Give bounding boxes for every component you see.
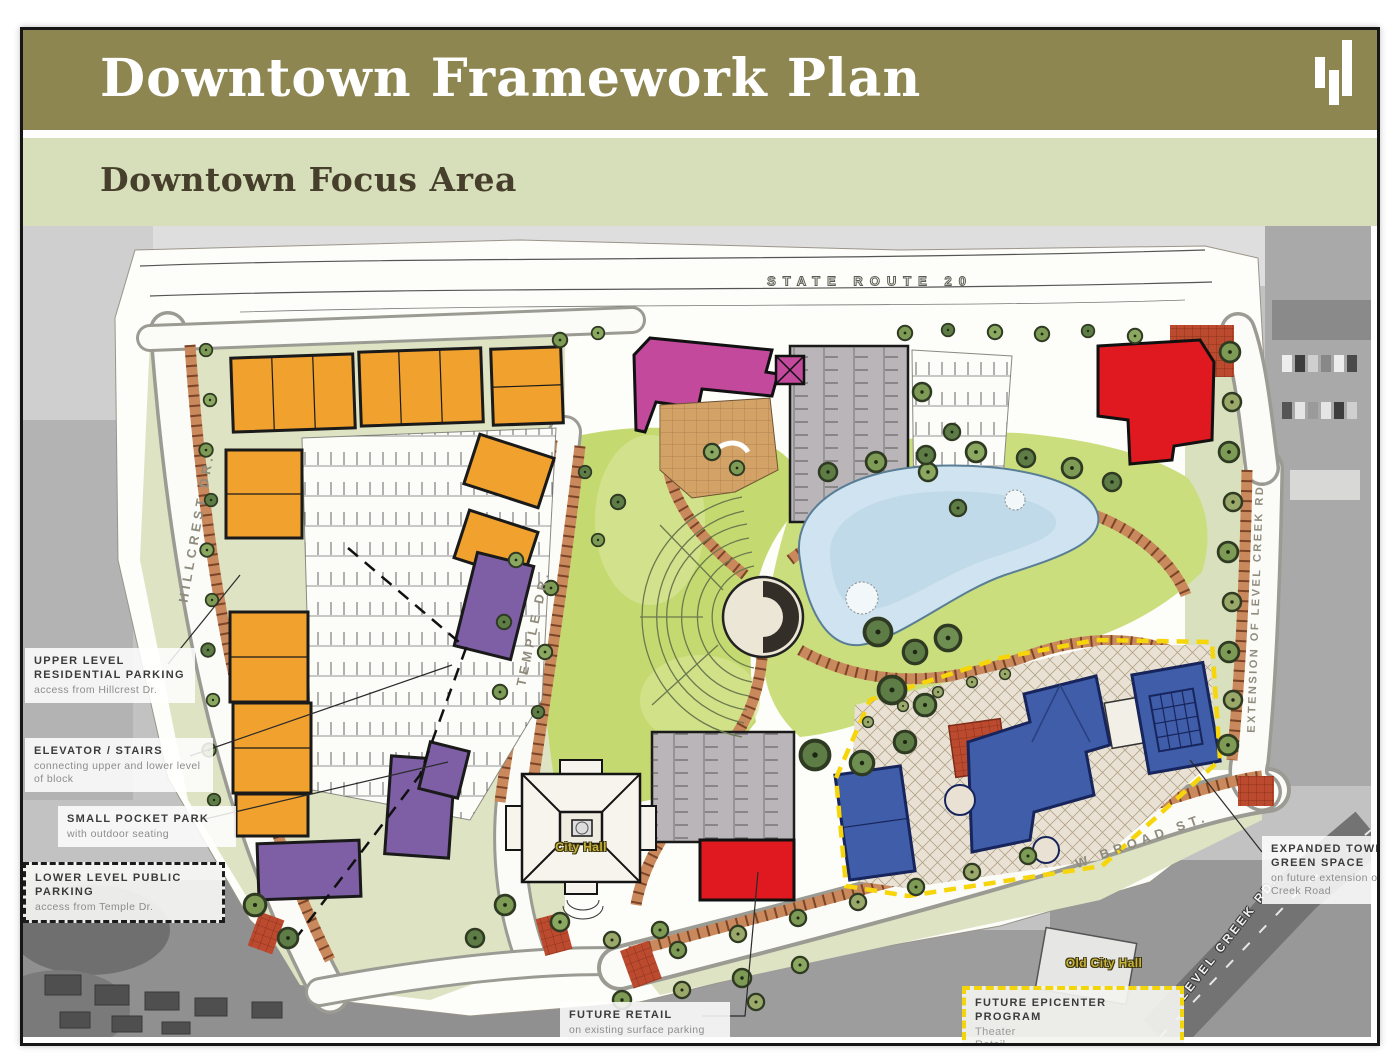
annotation-title: EXPANDED TOWN GREEN SPACE bbox=[1271, 843, 1380, 871]
annotation-body: with outdoor seating bbox=[67, 828, 227, 841]
place-label-old-city-hall: Old City Hall bbox=[1066, 956, 1143, 970]
annotation-title: ELEVATOR / STAIRS bbox=[34, 745, 204, 759]
annotation-future-retail: FUTURE RETAIL on existing surface parkin… bbox=[560, 1002, 730, 1043]
place-label-city-hall: City Hall bbox=[555, 840, 607, 854]
annotation-title: UPPER LEVEL RESIDENTIAL PARKING bbox=[34, 655, 186, 683]
annotation-body-theater: Theater bbox=[975, 1026, 1171, 1040]
site-plan-map bbox=[23, 226, 1371, 1037]
annotation-body-retail: Retail bbox=[975, 1039, 1171, 1046]
annotation-title: FUTURE EPICENTER PROGRAM bbox=[975, 997, 1171, 1025]
annotation-lower-level-public-parking: LOWER LEVEL PUBLIC PARKING access from T… bbox=[23, 862, 225, 923]
slide-subtitle: Downtown Focus Area bbox=[100, 160, 517, 199]
annotation-elevator-stairs: ELEVATOR / STAIRS connecting upper and l… bbox=[25, 738, 213, 792]
annotation-small-pocket-park: SMALL POCKET PARK with outdoor seating bbox=[58, 806, 236, 847]
annotation-future-epicenter-program: FUTURE EPICENTER PROGRAM Theater Retail bbox=[962, 986, 1184, 1046]
fountain-icon bbox=[1005, 490, 1025, 510]
annotation-title: FUTURE RETAIL bbox=[569, 1009, 721, 1023]
slide: Downtown Framework Plan Downtown Focus A… bbox=[20, 27, 1380, 1046]
annotation-body: connecting upper and lower level of bloc… bbox=[34, 760, 204, 786]
annotation-body: on existing surface parking bbox=[569, 1024, 721, 1037]
annotation-body: access from Hillcrest Dr. bbox=[34, 684, 186, 697]
title-bar: Downtown Framework Plan bbox=[23, 30, 1377, 130]
annotation-title: LOWER LEVEL PUBLIC PARKING bbox=[35, 872, 213, 900]
street-label-state-route-20: STATE ROUTE 20 bbox=[767, 274, 973, 289]
annotation-title: SMALL POCKET PARK bbox=[67, 813, 227, 827]
fountain-icon bbox=[846, 582, 878, 614]
subtitle-bar: Downtown Focus Area bbox=[23, 138, 1377, 226]
annotation-expanded-town-green-space: EXPANDED TOWN GREEN SPACE on future exte… bbox=[1262, 836, 1380, 904]
annotation-body: on future extension of Level Creek Road bbox=[1271, 872, 1380, 898]
site-plan-drawing bbox=[23, 226, 1371, 1037]
presentation-page: Downtown Framework Plan Downtown Focus A… bbox=[0, 0, 1397, 1058]
annotation-body: access from Temple Dr. bbox=[35, 901, 213, 914]
bar-chart-logo-icon bbox=[1315, 40, 1357, 110]
annotation-upper-level-residential-parking: UPPER LEVEL RESIDENTIAL PARKING access f… bbox=[25, 648, 195, 703]
slide-title: Downtown Framework Plan bbox=[100, 48, 921, 109]
